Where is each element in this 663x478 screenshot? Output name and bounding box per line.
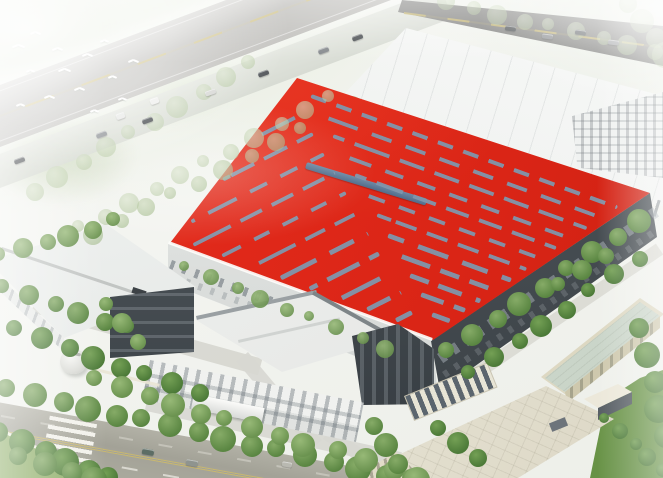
skylight-strip <box>337 271 391 302</box>
skylight-strip <box>395 310 413 323</box>
skylight-strip <box>409 273 481 303</box>
skylight-strip <box>431 312 451 323</box>
roof-ridge-vent <box>305 162 428 206</box>
skylight-strip <box>251 211 358 268</box>
skylight-strip <box>366 291 402 313</box>
skylight-strip <box>354 173 557 250</box>
aerial-rendering <box>0 0 663 478</box>
skylight-strip <box>279 231 369 280</box>
